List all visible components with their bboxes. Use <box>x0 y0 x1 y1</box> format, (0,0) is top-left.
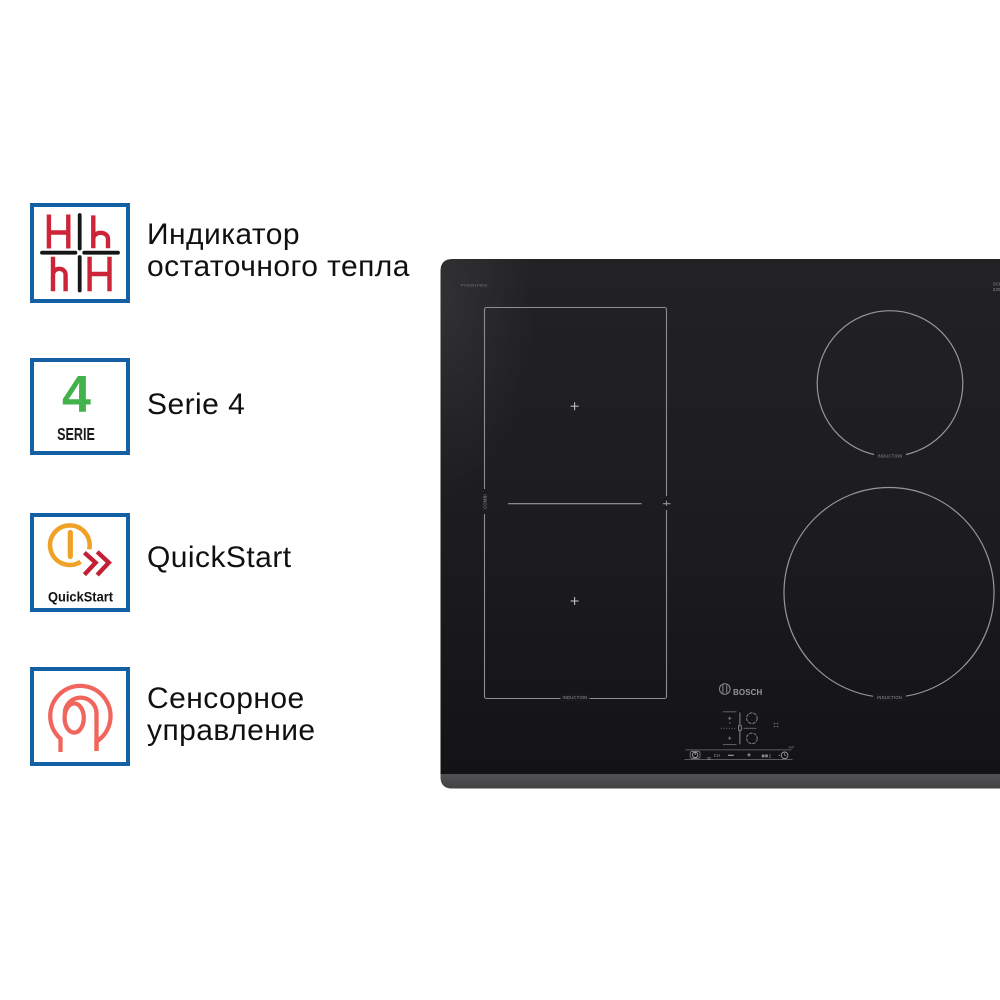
svg-text:CH: CH <box>714 753 720 758</box>
svg-text:BOSCH: BOSCH <box>733 688 763 697</box>
svg-text:INDUCTION: INDUCTION <box>877 695 902 700</box>
svg-text:QuickStart: QuickStart <box>48 589 113 604</box>
svg-text:INDUCTION: INDUCTION <box>878 454 903 459</box>
svg-text:kW: kW <box>789 746 795 750</box>
svg-text:COMBI: COMBI <box>482 494 487 509</box>
svg-text:INDUCTION: INDUCTION <box>563 695 588 700</box>
svg-text:SCHO: SCHO <box>993 282 1000 287</box>
svg-text:2201: 2201 <box>993 287 1000 292</box>
svg-text:PVS651FB5E: PVS651FB5E <box>461 283 488 288</box>
